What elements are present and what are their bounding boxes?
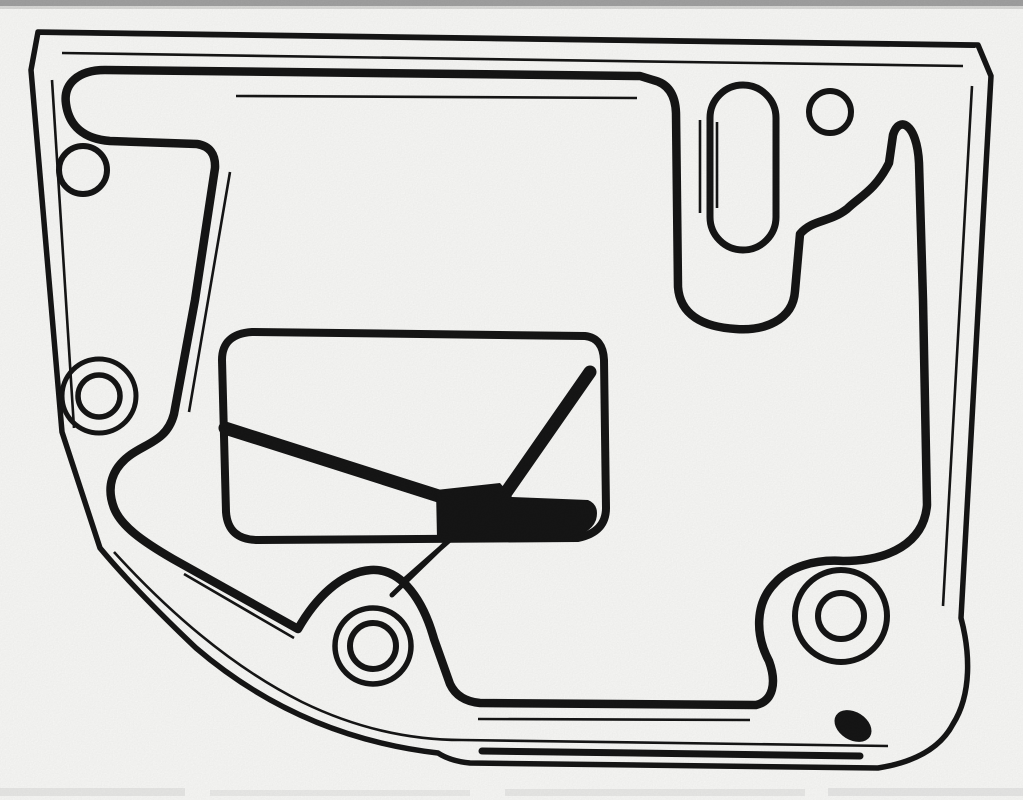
scanned-diagram-page [0,0,1023,800]
paper-grain-overlay [0,0,1023,800]
filter-plate-diagram [0,0,1023,800]
